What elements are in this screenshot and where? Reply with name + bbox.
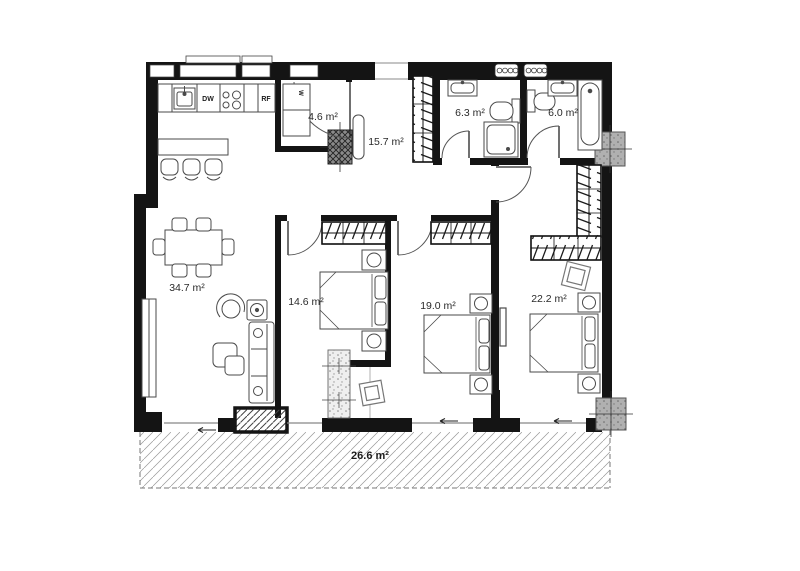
label-terrace: 26.6 m² xyxy=(351,450,389,462)
label-bathroom1: 6.3 m² xyxy=(455,107,485,119)
refrigerator-label: RF xyxy=(261,96,271,103)
coffee-tables xyxy=(213,343,244,375)
entry-door xyxy=(375,61,408,81)
decor-square-bedroom2 xyxy=(359,380,384,405)
bar-stools xyxy=(161,159,222,180)
wardrobe-bedroom2 xyxy=(431,222,491,244)
bed-bedroom1 xyxy=(320,250,388,351)
label-hallway: 15.7 m² xyxy=(368,136,404,148)
bath2-sink-icon xyxy=(548,80,577,96)
tv-bench xyxy=(142,299,156,397)
decor-square-bedroom3 xyxy=(561,261,590,290)
wall-right xyxy=(602,62,612,430)
tv-bedroom3 xyxy=(500,308,506,346)
hall-wardrobe xyxy=(413,76,433,162)
kitchen-island xyxy=(158,139,228,155)
hall-radiator xyxy=(353,115,364,159)
wall-kitchen-laundry xyxy=(275,62,281,152)
label-bedroom3: 22.2 m² xyxy=(531,293,567,305)
side-table-lamp xyxy=(247,300,267,320)
wall-bedroom1-west xyxy=(275,215,281,418)
label-bathroom2: 6.0 m² xyxy=(548,107,578,119)
laundry-cabinet xyxy=(283,110,310,136)
door-bedroom1 xyxy=(288,221,322,255)
label-bedroom2: 19.0 m² xyxy=(420,300,456,312)
kitchen xyxy=(158,84,275,180)
washer-cabinet xyxy=(283,84,310,110)
kitchen-sink-icon xyxy=(174,86,195,109)
window-frame-1 xyxy=(186,56,240,63)
window-kitchen-3 xyxy=(242,65,270,77)
living-room xyxy=(142,218,274,403)
armchair xyxy=(217,294,245,318)
wall-bath1-west xyxy=(433,62,440,165)
towel-radiator-bath2 xyxy=(524,64,547,77)
wall-bottom-mid xyxy=(322,418,412,432)
wardrobe-bedroom3-vertical xyxy=(577,165,601,237)
bed-bedroom3 xyxy=(530,293,600,393)
arrow-living xyxy=(198,428,216,433)
wall-laundry-east-a xyxy=(346,62,352,82)
label-living: 34.7 m² xyxy=(169,282,205,294)
entry-opening xyxy=(375,61,408,81)
wall-bedroom3-west-a xyxy=(491,158,499,166)
window-kitchen-2 xyxy=(180,65,236,77)
towel-radiator-bath1 xyxy=(495,64,518,77)
wardrobe-bedroom3-horizontal xyxy=(531,236,601,260)
label-bedroom1: 14.6 m² xyxy=(288,296,324,308)
bath1-shower-icon xyxy=(484,122,518,157)
window-laundry xyxy=(290,65,318,77)
wall-left-upper xyxy=(146,62,158,202)
wall-bottom-stub1 xyxy=(218,418,235,432)
column-terrace xyxy=(235,408,287,432)
beds xyxy=(320,250,600,394)
wall-bottom-t xyxy=(473,418,520,432)
door-bedroom2 xyxy=(398,221,432,255)
door-bedroom3 xyxy=(496,167,531,202)
dishwasher-label: DW xyxy=(202,96,214,103)
window-kitchen-1 xyxy=(150,65,174,77)
bathtub-icon xyxy=(578,80,602,150)
wall-bath1-south-a xyxy=(433,158,442,165)
floor-plan-page: DW RF W xyxy=(0,0,800,566)
wardrobes xyxy=(322,165,601,260)
door-bath2 xyxy=(527,126,559,158)
wall-corner-bl xyxy=(134,412,162,432)
sofa xyxy=(249,322,274,403)
floor-plan: DW RF W xyxy=(0,0,800,566)
bath1-toilet-icon xyxy=(490,99,520,123)
label-laundry: 4.6 m² xyxy=(308,111,338,123)
wardrobe-bedroom1 xyxy=(322,222,386,244)
door-bath1 xyxy=(442,131,469,158)
bath1-sink-icon xyxy=(448,80,477,96)
dining-table xyxy=(153,218,234,277)
wall-corridor-c xyxy=(431,215,491,221)
wall-bath-divider xyxy=(520,62,527,165)
washer-label: W xyxy=(297,90,303,96)
window-frame-2 xyxy=(242,56,272,63)
